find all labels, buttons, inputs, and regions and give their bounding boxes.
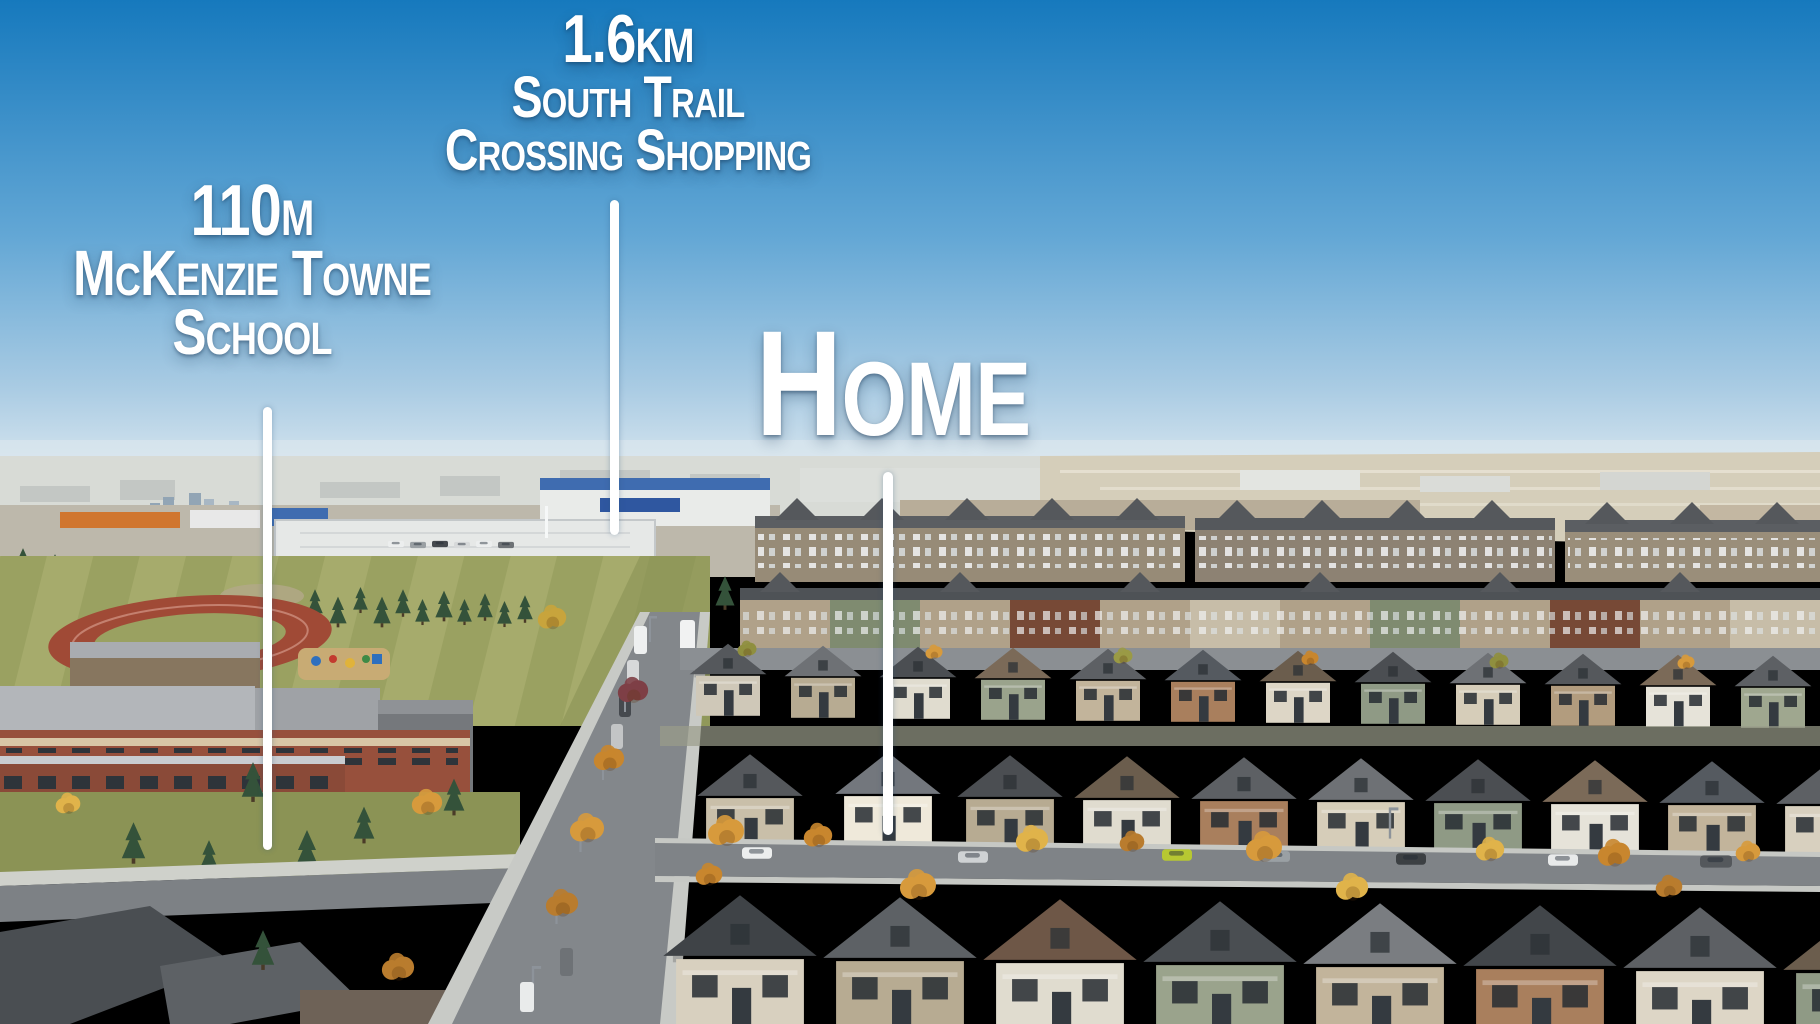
shopping-name-line2: Crossing Shopping	[445, 124, 811, 177]
flag-pole	[545, 506, 548, 538]
school-distance: 110m	[73, 178, 431, 244]
house-row-far	[680, 641, 1820, 728]
shopping-name-line1: South Trail	[445, 71, 811, 124]
townhouse-row	[740, 572, 1820, 650]
house-row-foreground	[663, 895, 1820, 1024]
pointer-line-school	[263, 407, 272, 850]
label-shopping: 1.6km South Trail Crossing Shopping	[445, 8, 811, 177]
label-home: Home	[756, 308, 1031, 458]
playground	[298, 648, 390, 680]
home-label: Home	[756, 308, 1031, 458]
aerial-photo-background	[0, 0, 1820, 1024]
shopping-distance: 1.6km	[445, 8, 811, 71]
school-name-line2: School	[73, 303, 431, 362]
pointer-line-shopping	[610, 200, 619, 535]
pointer-line-home	[883, 472, 893, 835]
school-name-line1: McKenzie Towne	[73, 244, 431, 303]
aerial-photo: 1.6km South Trail Crossing Shopping 110m…	[0, 0, 1820, 1024]
label-school: 110m McKenzie Towne School	[73, 178, 431, 362]
